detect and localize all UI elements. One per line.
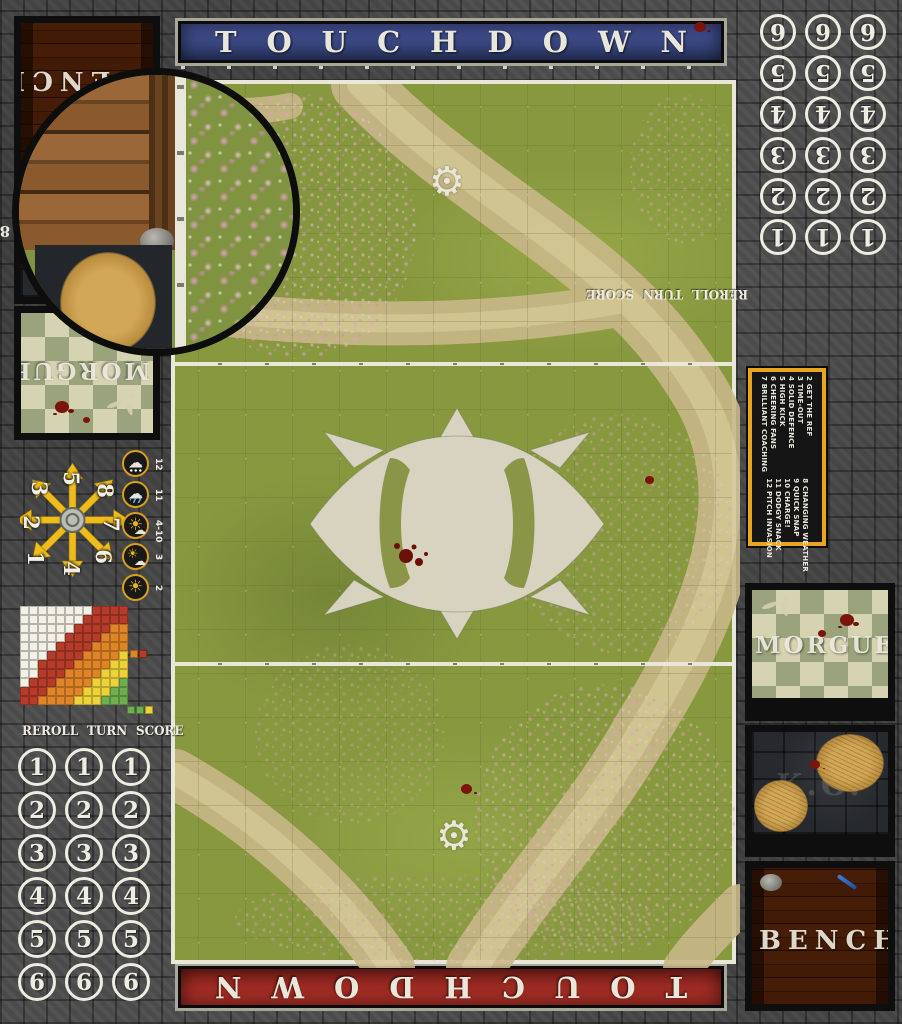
bench-label: BENCH [752, 926, 888, 956]
ko-zone-right[interactable]: K.O. 8-9 [745, 725, 895, 857]
range-cell [47, 660, 56, 669]
range-cell [38, 633, 47, 642]
blood-splatter [645, 476, 654, 484]
range-cell [29, 669, 38, 678]
range-cell [29, 615, 38, 624]
blood-splatter [694, 22, 706, 32]
track-circle-3[interactable]: 3 [65, 834, 103, 872]
blood-splatter [83, 417, 90, 423]
range-cell [74, 615, 83, 624]
track-circle-5[interactable]: 5 [18, 920, 56, 958]
track-circle-3[interactable]: 3 [850, 137, 886, 173]
magnified-meadow [175, 75, 293, 349]
track-circle-2[interactable]: 2 [112, 791, 150, 829]
range-cell [20, 669, 29, 678]
range-cell [101, 642, 110, 651]
range-cell [110, 633, 119, 642]
field-third-line-lower [175, 662, 732, 666]
center-field-logo [302, 406, 612, 641]
kickoff-event[interactable]: 12 PITCH INVASION [765, 478, 773, 572]
range-cell [56, 624, 65, 633]
range-cell [38, 687, 47, 696]
hay-pile [754, 780, 808, 832]
range-cell [110, 660, 119, 669]
track-circle-2[interactable]: 2 [18, 791, 56, 829]
track-circle-4[interactable]: 4 [760, 96, 796, 132]
snow-icon [129, 468, 142, 473]
turn-track-row: 555 [744, 55, 886, 91]
weather-sun-behind-cloud-icon: ☀☁ [122, 512, 149, 539]
range-cell [56, 687, 65, 696]
range-cell [92, 669, 101, 678]
kickoff-event[interactable]: 2 GET THE REF [806, 376, 814, 472]
range-cell [65, 642, 74, 651]
rain-icon [130, 498, 142, 503]
range-cell [110, 606, 119, 615]
scatter-number-1: 1 [23, 551, 48, 566]
range-cell [47, 615, 56, 624]
weather-roll-value: 3 [153, 551, 163, 563]
range-cell [38, 615, 47, 624]
scatter-number-3: 3 [27, 481, 52, 496]
range-cell [92, 687, 101, 696]
range-cell [74, 660, 83, 669]
legend-swatch [139, 650, 147, 658]
track-circle-3[interactable]: 3 [112, 834, 150, 872]
range-cell [119, 660, 128, 669]
hay-pile [816, 734, 884, 792]
range-cell [110, 669, 119, 678]
range-cell [38, 642, 47, 651]
kickoff-event[interactable]: 7 BRILLIANT COACHING [761, 376, 769, 472]
range-cell [101, 651, 110, 660]
range-cell [74, 642, 83, 651]
kickoff-event[interactable]: 3 TIME-OUT [797, 376, 805, 472]
range-cell [92, 606, 101, 615]
range-row [20, 624, 128, 633]
kickoff-event[interactable]: 6 CHEERING FANS [770, 376, 778, 472]
range-cell [101, 633, 110, 642]
skeleton-remains [100, 385, 149, 431]
bowl-prop [760, 874, 782, 891]
banner-rivets-top [181, 66, 721, 69]
field-third-line-upper [175, 362, 732, 366]
track-circle-3[interactable]: 3 [18, 834, 56, 872]
range-cell [83, 669, 92, 678]
turn-track-row: 444 [18, 877, 150, 915]
range-cell [29, 687, 38, 696]
range-row [20, 642, 128, 651]
track-title-left: REROLL TURN SCORE [22, 724, 184, 739]
legend-swatch [130, 650, 138, 658]
morgue-label: MORGUE [21, 357, 153, 384]
weather-roll-value: 2 [153, 582, 163, 594]
range-cell [74, 651, 83, 660]
range-row [20, 606, 128, 615]
range-cell [92, 624, 101, 633]
range-cell [101, 624, 110, 633]
turn-track-row: 222 [744, 178, 886, 214]
track-circle-6[interactable]: 6 [18, 963, 56, 1001]
track-circle-5[interactable]: 5 [850, 55, 886, 91]
turn-track-row: 333 [744, 137, 886, 173]
range-cell [65, 687, 74, 696]
range-cell [119, 696, 128, 705]
range-row [20, 660, 128, 669]
range-cell [20, 696, 29, 705]
range-cell [92, 651, 101, 660]
track-circle-5[interactable]: 5 [65, 920, 103, 958]
range-cell [119, 687, 128, 696]
range-cell [65, 660, 74, 669]
range-cell [74, 633, 83, 642]
weather-row: ☀2 [122, 574, 164, 601]
blood-splatter [55, 401, 69, 413]
range-cell [47, 651, 56, 660]
range-cell [92, 633, 101, 642]
blood-splatter [840, 614, 854, 626]
range-cell [74, 678, 83, 687]
range-cell [101, 660, 110, 669]
range-cell [74, 606, 83, 615]
turn-score-track-right-block: 111222333444555666 REROLL TURN SCORE [744, 14, 886, 255]
track-circle-6[interactable]: 6 [760, 14, 796, 50]
kickoff-event[interactable]: 11 DODGY SNACK [774, 478, 782, 572]
range-cell [83, 651, 92, 660]
bench-zone-right[interactable]: BENCH [745, 861, 895, 1011]
range-cell [110, 642, 119, 651]
scatter-number-7: 7 [99, 517, 124, 532]
weather-row: ☀☁4-10 [122, 512, 164, 539]
range-cell [110, 678, 119, 687]
range-row [20, 678, 128, 687]
bloodbowl-pitch-mat: TOUCHDOWN TOUCHDOWN [0, 0, 902, 1024]
track-circle-5[interactable]: 5 [112, 920, 150, 958]
track-circle-6[interactable]: 6 [112, 963, 150, 1001]
range-cell [119, 642, 128, 651]
sun-icon: ☀ [128, 579, 143, 596]
pass-range-ruler-chart [20, 606, 128, 705]
weather-rain-icon: ☁ [122, 481, 149, 508]
blood-splatter [461, 784, 472, 794]
range-cell [65, 669, 74, 678]
scatter-direction-template: 12345678 [20, 458, 126, 582]
weather-roll-value: 11 [153, 489, 163, 501]
track-circle-5[interactable]: 5 [760, 55, 796, 91]
range-cell [47, 678, 56, 687]
range-cell [38, 669, 47, 678]
track-circle-1[interactable]: 1 [760, 219, 796, 255]
range-cell [101, 696, 110, 705]
track-circle-1[interactable]: 1 [65, 748, 103, 786]
range-cell [83, 696, 92, 705]
track-circle-1[interactable]: 1 [112, 748, 150, 786]
range-cell [83, 615, 92, 624]
range-cell [101, 669, 110, 678]
range-cell [47, 633, 56, 642]
range-cell [92, 696, 101, 705]
zoom-detail-circle [12, 68, 300, 356]
range-cell [83, 642, 92, 651]
track-circle-6[interactable]: 6 [805, 14, 841, 50]
range-cell [20, 687, 29, 696]
track-circle-4[interactable]: 4 [112, 877, 150, 915]
range-cell [110, 624, 119, 633]
range-cell [20, 642, 29, 651]
range-cell [110, 651, 119, 660]
range-cell [92, 615, 101, 624]
magnified-hay [35, 245, 172, 356]
scatter-number-8: 8 [93, 483, 118, 498]
range-cell [56, 642, 65, 651]
range-cell [20, 606, 29, 615]
range-cell [20, 660, 29, 669]
range-row [20, 696, 128, 705]
kickoff-event[interactable]: 5 HIGH KICK [779, 376, 787, 472]
track-title-right: REROLL TURN SCORE [586, 286, 748, 301]
track-circle-2[interactable]: 2 [805, 178, 841, 214]
range-cell [47, 606, 56, 615]
range-cell [29, 660, 38, 669]
range-cell [65, 651, 74, 660]
skeleton-remains [755, 590, 804, 632]
range-cell [119, 624, 128, 633]
range-cell [92, 678, 101, 687]
range-cell [29, 624, 38, 633]
range-cell [38, 624, 47, 633]
range-cell [83, 606, 92, 615]
range-cell [83, 678, 92, 687]
blood-splatter [810, 760, 820, 769]
range-row [20, 651, 128, 660]
range-cell [119, 669, 128, 678]
track-circle-5[interactable]: 5 [805, 55, 841, 91]
range-cell [29, 696, 38, 705]
turn-track-row: 222 [18, 791, 150, 829]
range-legend-trio [127, 706, 153, 714]
track-circle-2[interactable]: 2 [65, 791, 103, 829]
range-cell [47, 669, 56, 678]
range-cell [29, 642, 38, 651]
magnified-bench-wood [19, 75, 175, 250]
range-cell [74, 696, 83, 705]
range-cell [29, 651, 38, 660]
scatter-number-4: 4 [59, 561, 84, 576]
range-cell [119, 651, 128, 660]
range-cell [47, 696, 56, 705]
range-cell [56, 696, 65, 705]
range-cell [38, 678, 47, 687]
range-cell [74, 624, 83, 633]
range-cell [110, 687, 119, 696]
range-cell [38, 606, 47, 615]
range-cell [92, 642, 101, 651]
range-cell [110, 696, 119, 705]
range-cell [65, 606, 74, 615]
range-cell [101, 615, 110, 624]
legend-swatch [136, 706, 144, 714]
range-cell [56, 606, 65, 615]
weather-roll-value: 4-10 [153, 520, 163, 532]
morgue-zone-right[interactable]: MORGUE 10-12 [745, 583, 895, 721]
turn-track-row: 111 [18, 748, 150, 786]
track-circle-4[interactable]: 4 [18, 877, 56, 915]
turn-score-track-left: 111222333444555666 [18, 748, 150, 1001]
weather-roll-value: 12 [153, 458, 163, 470]
range-cell [38, 651, 47, 660]
chisel-prop [837, 874, 857, 890]
range-cell [20, 615, 29, 624]
legend-swatch [127, 706, 135, 714]
cloud-icon: ☁ [134, 555, 146, 567]
gear-logo-icon: ⚙ [429, 162, 465, 202]
kickoff-event[interactable]: 9 QUICK SNAP [792, 478, 800, 572]
turn-track-row: 555 [18, 920, 150, 958]
range-cell [20, 633, 29, 642]
range-legend-pair [130, 650, 147, 658]
range-cell [56, 678, 65, 687]
range-cell [65, 696, 74, 705]
range-cell [29, 633, 38, 642]
range-cell [65, 678, 74, 687]
legend-swatch [145, 706, 153, 714]
track-circle-2[interactable]: 2 [850, 178, 886, 214]
range-cell [65, 633, 74, 642]
range-row [20, 615, 128, 624]
range-cell [119, 606, 128, 615]
range-cell [56, 615, 65, 624]
scatter-number-6: 6 [91, 549, 116, 564]
range-cell [65, 615, 74, 624]
track-circle-3[interactable]: 3 [805, 137, 841, 173]
kickoff-event[interactable]: 8 CHANGING WEATHER [801, 478, 809, 572]
track-circle-2[interactable]: 2 [760, 178, 796, 214]
track-circle-1[interactable]: 1 [18, 748, 56, 786]
track-circle-3[interactable]: 3 [760, 137, 796, 173]
kickoff-event-table[interactable]: 2 GET THE REF3 TIME-OUT4 SOLID DEFENCE5 … [748, 368, 826, 546]
track-circle-4[interactable]: 4 [850, 96, 886, 132]
range-cell [119, 633, 128, 642]
range-cell [29, 606, 38, 615]
gear-logo-icon: ⚙ [436, 814, 472, 854]
turn-track-row: 666 [744, 14, 886, 50]
range-cell [56, 633, 65, 642]
range-cell [101, 606, 110, 615]
range-cell [20, 624, 29, 633]
range-cell [74, 669, 83, 678]
range-cell [20, 678, 29, 687]
weather-row: ☁12 [122, 450, 164, 477]
range-cell [56, 660, 65, 669]
range-cell [47, 642, 56, 651]
range-cell [56, 651, 65, 660]
range-cell [83, 687, 92, 696]
weather-blizzard-icon: ☁ [122, 450, 149, 477]
range-cell [47, 687, 56, 696]
range-cell [29, 678, 38, 687]
track-circle-1[interactable]: 1 [805, 219, 841, 255]
turn-score-track-right: 111222333444555666 [744, 14, 886, 255]
weather-sun-with-cloud-icon: ☀☁ [122, 543, 149, 570]
range-row [20, 687, 128, 696]
range-cell [83, 660, 92, 669]
range-cell [38, 660, 47, 669]
scatter-number-2: 2 [19, 515, 44, 530]
track-circle-6[interactable]: 6 [65, 963, 103, 1001]
weather-row: ☁11 [122, 481, 164, 508]
range-cell [110, 615, 119, 624]
turn-track-row: 333 [18, 834, 150, 872]
turn-track-row: 111 [744, 219, 886, 255]
turn-track-row: 444 [744, 96, 886, 132]
range-cell [92, 660, 101, 669]
kickoff-event[interactable]: 4 SOLID DEFENCE [788, 376, 796, 472]
kickoff-event[interactable]: 10 CHARGE! [783, 478, 791, 572]
range-cell [20, 651, 29, 660]
range-cell [119, 678, 128, 687]
range-row [20, 633, 128, 642]
range-cell [47, 624, 56, 633]
weather-sun-icon: ☀ [122, 574, 149, 601]
turn-track-row: 666 [18, 963, 150, 1001]
track-circle-4[interactable]: 4 [805, 96, 841, 132]
range-cell [119, 615, 128, 624]
range-cell [101, 678, 110, 687]
touchdown-banner-bottom: TOUCHDOWN [178, 966, 724, 1008]
weather-table: ☁12☁11☀☁4-10☀☁3☀2 [122, 450, 164, 601]
range-cell [101, 687, 110, 696]
ko-range-partial: 8-9 [0, 222, 10, 240]
range-cell [74, 687, 83, 696]
range-cell [83, 624, 92, 633]
cloud-icon: ☁ [134, 524, 146, 536]
range-row [20, 669, 128, 678]
track-circle-4[interactable]: 4 [65, 877, 103, 915]
track-circle-6[interactable]: 6 [850, 14, 886, 50]
scatter-number-5: 5 [59, 471, 84, 486]
range-cell [65, 624, 74, 633]
blood-splatter [818, 630, 826, 637]
track-circle-1[interactable]: 1 [850, 219, 886, 255]
touchdown-banner-top: TOUCHDOWN [178, 21, 724, 63]
range-cell [56, 669, 65, 678]
weather-row: ☀☁3 [122, 543, 164, 570]
range-cell [83, 633, 92, 642]
range-cell [38, 696, 47, 705]
